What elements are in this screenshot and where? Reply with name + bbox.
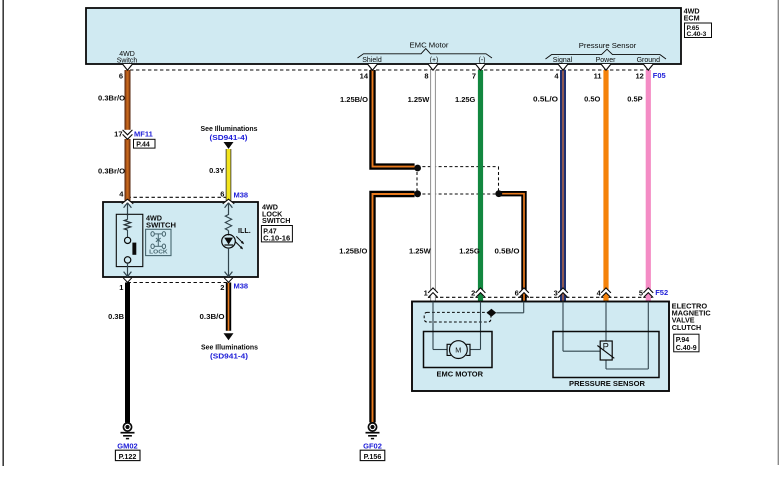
- svg-text:C.10-16: C.10-16: [263, 236, 290, 243]
- svg-text:(SD941-4): (SD941-4): [210, 351, 249, 360]
- svg-text:MF11: MF11: [134, 130, 153, 139]
- svg-text:EMC MOTOR: EMC MOTOR: [437, 370, 484, 379]
- svg-text:M: M: [455, 346, 461, 355]
- svg-text:1.25B/O: 1.25B/O: [340, 95, 368, 104]
- svg-text:12: 12: [635, 71, 643, 80]
- svg-text:P.122: P.122: [119, 452, 137, 461]
- svg-text:5: 5: [639, 288, 643, 297]
- svg-text:SWITCH: SWITCH: [146, 221, 176, 230]
- svg-text:0.5L/O: 0.5L/O: [533, 94, 558, 103]
- svg-text:0.3B: 0.3B: [108, 312, 124, 321]
- svg-text:GF02: GF02: [363, 442, 382, 451]
- svg-text:0.3Y: 0.3Y: [209, 166, 224, 175]
- svg-text:Power: Power: [596, 57, 617, 64]
- svg-text:4: 4: [119, 190, 124, 199]
- svg-text:Signal: Signal: [553, 57, 573, 64]
- svg-text:(+): (+): [430, 57, 439, 64]
- svg-text:0.3Br/O: 0.3Br/O: [98, 167, 125, 176]
- svg-text:P.44: P.44: [136, 141, 150, 148]
- svg-text:4: 4: [597, 288, 602, 297]
- svg-text:0.3Br/O: 0.3Br/O: [98, 94, 125, 103]
- svg-text:PRESSURE SENSOR: PRESSURE SENSOR: [569, 379, 646, 388]
- svg-text:P.156: P.156: [364, 452, 382, 461]
- svg-text:1: 1: [119, 283, 123, 292]
- svg-text:0.5B/O: 0.5B/O: [495, 247, 520, 256]
- svg-text:0.5O: 0.5O: [584, 94, 600, 103]
- svg-text:6: 6: [515, 288, 519, 297]
- svg-text:Switch: Switch: [117, 58, 138, 65]
- svg-text:(-): (-): [479, 57, 486, 64]
- svg-text:1.25G: 1.25G: [459, 247, 480, 256]
- svg-text:0.5P: 0.5P: [627, 94, 642, 103]
- svg-text:8: 8: [424, 71, 428, 80]
- svg-text:C.40-3: C.40-3: [687, 31, 707, 38]
- svg-text:1: 1: [424, 288, 428, 297]
- svg-text:ECM: ECM: [684, 14, 700, 23]
- svg-text:GM02: GM02: [117, 442, 137, 451]
- svg-text:14: 14: [360, 71, 369, 80]
- svg-text:F05: F05: [653, 71, 666, 80]
- svg-text:P.47: P.47: [263, 228, 277, 235]
- svg-text:C.40-9: C.40-9: [676, 345, 697, 352]
- svg-text:See Illuminations: See Illuminations: [201, 124, 258, 133]
- svg-text:Shield: Shield: [362, 57, 382, 64]
- svg-text:1.25G: 1.25G: [455, 95, 476, 104]
- svg-text:EMC Motor: EMC Motor: [410, 41, 450, 50]
- svg-text:(SD941-4): (SD941-4): [210, 133, 249, 142]
- svg-text:1.25W: 1.25W: [409, 247, 432, 256]
- svg-text:Ground: Ground: [637, 57, 660, 64]
- svg-text:2: 2: [220, 283, 224, 292]
- svg-text:CLUTCH: CLUTCH: [672, 323, 702, 332]
- svg-text:2: 2: [471, 288, 475, 297]
- svg-text:SWITCH: SWITCH: [262, 216, 291, 225]
- svg-text:F52: F52: [655, 288, 668, 297]
- svg-text:See Illuminations: See Illuminations: [201, 343, 258, 352]
- svg-text:1.25W: 1.25W: [408, 95, 431, 104]
- svg-text:17: 17: [114, 130, 122, 139]
- svg-text:6: 6: [220, 190, 224, 199]
- svg-text:ILL.: ILL.: [238, 226, 251, 235]
- svg-text:P.94: P.94: [676, 337, 690, 344]
- svg-text:1.25B/O: 1.25B/O: [339, 247, 367, 256]
- svg-text:7: 7: [472, 71, 476, 80]
- svg-text:0.3B/O: 0.3B/O: [200, 312, 225, 321]
- svg-text:4: 4: [554, 71, 559, 80]
- svg-text:11: 11: [594, 71, 602, 80]
- svg-text:3: 3: [554, 288, 558, 297]
- svg-text:LOCK: LOCK: [149, 250, 168, 256]
- svg-text:M38: M38: [234, 190, 249, 199]
- svg-text:M38: M38: [234, 281, 249, 290]
- svg-text:Pressure Sensor: Pressure Sensor: [579, 41, 637, 50]
- svg-text:6: 6: [119, 71, 123, 80]
